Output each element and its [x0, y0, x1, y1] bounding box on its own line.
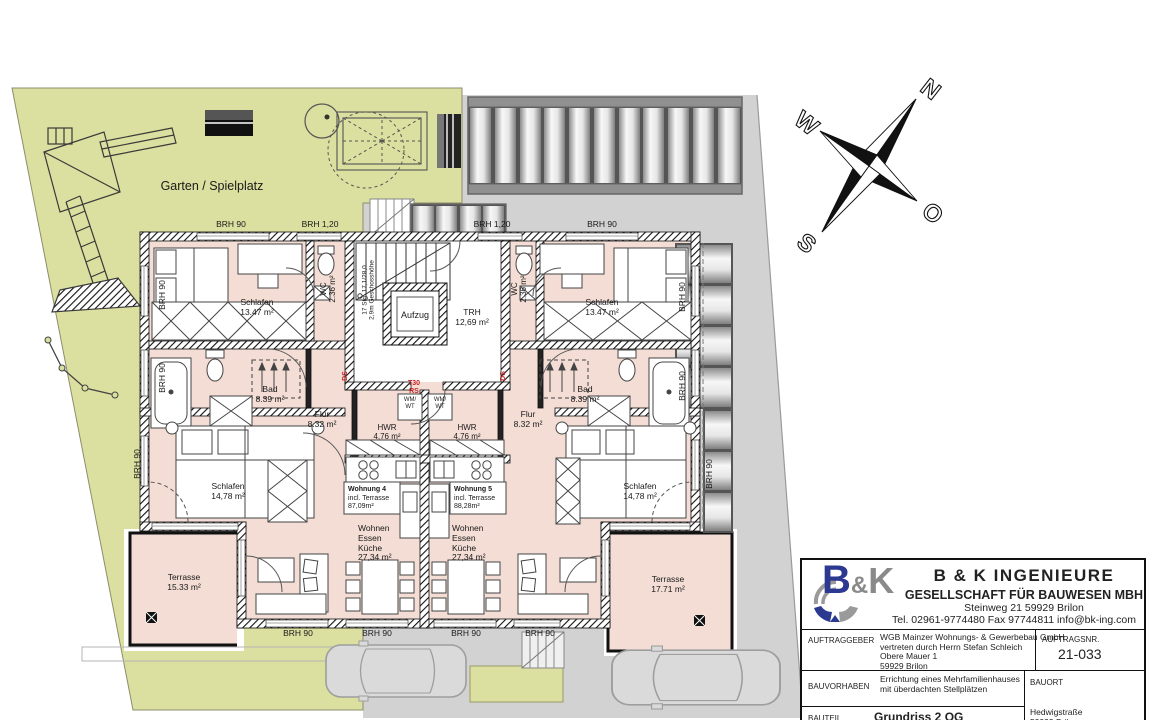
room-area: 27,34 m² [358, 553, 392, 563]
fire-door-label-t30rs: T30 RS [408, 380, 420, 396]
dim-brh90-east-3: BRH 90 [705, 459, 715, 489]
room-label-bad-left: Bad 8.39 m² [256, 385, 285, 405]
compass-w-label: W [789, 106, 824, 141]
room-label-hwr-left: HWR 4,76 m² [373, 423, 400, 441]
bk-logo-text: B&K [822, 558, 894, 603]
unit-area: 87,09m² [348, 503, 389, 512]
room-area: 27,34 m² [452, 553, 486, 563]
company-contact: Tel. 02961-9774480 Fax 97744811 info@bk-… [882, 614, 1146, 626]
bauteil-value: Grundriss 2 OG [874, 710, 963, 720]
room-area: 13.47 m² [240, 308, 274, 318]
room-area: 13.47 m² [585, 308, 619, 318]
room-label-schlafen2-left: Schlafen 14,78 m² [211, 482, 245, 502]
ds-marker-left: DS [342, 371, 350, 381]
room-area: 14,78 m² [211, 492, 245, 502]
room-name: WC [510, 275, 519, 302]
dim-brh90-top-left: BRH 90 [216, 220, 246, 230]
stair-note: 17 Stg. 17,1/28,0 2,9m Geschosshöhe [362, 260, 377, 320]
auftragsnr-value: 21-033 [1058, 646, 1102, 662]
room-area: 12,69 m² [455, 318, 489, 328]
appliance-label: WT [434, 404, 446, 411]
wm-wt-right: WM/ WT [434, 397, 446, 411]
room-label-terrasse-right: Terrasse 17.71 m² [651, 575, 685, 595]
dim-brh90-west-2: BRH 90 [158, 363, 168, 393]
building [82, 199, 737, 668]
company-subtitle: GESELLSCHAFT FÜR BAUWESEN MBH [902, 588, 1146, 602]
dim-brh90-south-4: BRH 90 [525, 629, 555, 639]
room-area: 15.33 m² [167, 583, 201, 593]
stair-note-line: 17 Stg. 17,1/28,0 [362, 260, 369, 320]
title-block: B&K B & K INGENIEURE GESELLSCHAFT FÜR BA… [800, 558, 1146, 720]
garden-bench [205, 110, 253, 136]
room-label-wohnen-left: Wohnen Essen Küche 27,34 m² [358, 524, 392, 563]
door-rating: RS [408, 388, 420, 396]
unit-label-wohnung4: Wohnung 4 incl. Terrasse 87,09m² [348, 486, 389, 512]
room-name: WC [319, 275, 328, 302]
unit-name: Wohnung 4 [348, 486, 389, 495]
logo-letter: & [851, 572, 868, 599]
room-label-schlafen1-right: Schlafen 13.47 m² [585, 298, 619, 318]
room-area: 17.71 m² [651, 585, 685, 595]
unit-terrace-note: incl. Terrasse [348, 495, 389, 504]
room-name: HWR [453, 423, 480, 432]
garden-patch-south [470, 666, 563, 702]
compass-rose: N W S O [789, 74, 948, 260]
room-area: 2.36 m² [328, 275, 337, 302]
garden-label: Garten / Spielplatz [161, 179, 264, 193]
dim-brh90-south-2: BRH 90 [362, 629, 392, 639]
room-area: 8.32 m² [514, 420, 543, 430]
unit-terrace-note: incl. Terrasse [454, 495, 495, 504]
dim-brh90-top-right: BRH 90 [587, 220, 617, 230]
bauvorhaben-label: BAUVORHABEN [808, 682, 869, 691]
dim-brh90-east-1: BRH 90 [678, 282, 688, 312]
striped-bench [437, 114, 461, 168]
company-address: Steinweg 21 59929 Brilon [902, 602, 1146, 614]
appliance-label: WT [404, 404, 416, 411]
room-label-wohnen-right: Wohnen Essen Küche 27,34 m² [452, 524, 486, 563]
room-area: 14,78 m² [623, 492, 657, 502]
room-label-flur-right: Flur 8.32 m² [514, 410, 543, 430]
dim-brh120-top-left: BRH 1,20 [302, 220, 339, 230]
room-area: 8.32 m² [308, 420, 337, 430]
dim-brh120-top-right: BRH 1,20 [474, 220, 511, 230]
north-entrance [370, 199, 506, 236]
dim-brh90-west-1: BRH 90 [158, 280, 168, 310]
door-rating: T30 [408, 380, 420, 388]
appliance-label: WM/ [404, 397, 416, 404]
room-area: 4,76 m² [453, 432, 480, 441]
unit-label-wohnung5: Wohnung 5 incl. Terrasse 88,28m² [454, 486, 495, 512]
auftragsnr-label: AUFTRAGSNR. [1042, 635, 1099, 644]
logo-letter: B [822, 558, 851, 602]
company-name: B & K INGENIEURE [902, 566, 1146, 586]
dim-brh90-west-3: BRH 90 [133, 449, 143, 479]
wm-wt-left: WM/ WT [404, 397, 416, 411]
dim-brh90-east-2: BRH 90 [678, 371, 688, 401]
room-label-flur-left: Flur 8.32 m² [308, 410, 337, 430]
bauvorhaben-line2: mit überdachten Stellplätzen [880, 685, 987, 695]
compass-n-label: N [915, 74, 945, 106]
compass-o-label: O [917, 197, 948, 230]
dim-brh90-south-1: BRH 90 [283, 629, 313, 639]
unit-area: 88,28m² [454, 503, 495, 512]
appliance-label: WM/ [434, 397, 446, 404]
room-label-wc-left: WC 2.36 m² [319, 275, 337, 302]
room-area: 4,76 m² [373, 432, 400, 441]
room-area: 2.36 m² [519, 275, 528, 302]
dim-brh90-south-3: BRH 90 [451, 629, 481, 639]
compass-s-label: S [792, 228, 821, 259]
bauort-label: BAUORT [1030, 678, 1063, 687]
room-name: HWR [373, 423, 400, 432]
bauteil-label: BAUTEIL [808, 714, 841, 720]
room-label-hwr-right: HWR 4,76 m² [453, 423, 480, 441]
unit-name: Wohnung 5 [454, 486, 495, 495]
carport-roof [468, 97, 742, 194]
room-label-schlafen2-right: Schlafen 14,78 m² [623, 482, 657, 502]
room-area: 8.39 m² [256, 395, 285, 405]
room-area: 8.39 m² [571, 395, 600, 405]
room-label-terrasse-left: Terrasse 15.33 m² [167, 573, 201, 593]
room-label-bad-right: Bad 8.39 m² [571, 385, 600, 405]
room-label-wc-right: WC 2.36 m² [510, 275, 528, 302]
room-label-schlafen1-left: Schlafen 13.47 m² [240, 298, 274, 318]
floor-plan-sheet: N W S O Garten / Spielplatz BRH 90 BRH 1… [0, 0, 1150, 720]
auftraggeber-label: AUFTRAGGEBER [808, 636, 874, 645]
auftraggeber-line4: 59929 Brilon [880, 662, 928, 672]
elevator-label: Aufzug [401, 310, 429, 320]
logo-letter: K [868, 560, 894, 601]
ds-marker-right: DS [500, 371, 508, 381]
room-label-trh: TRH 12,69 m² [455, 308, 489, 328]
stair-note-line: 2,9m Geschosshöhe [369, 260, 376, 320]
